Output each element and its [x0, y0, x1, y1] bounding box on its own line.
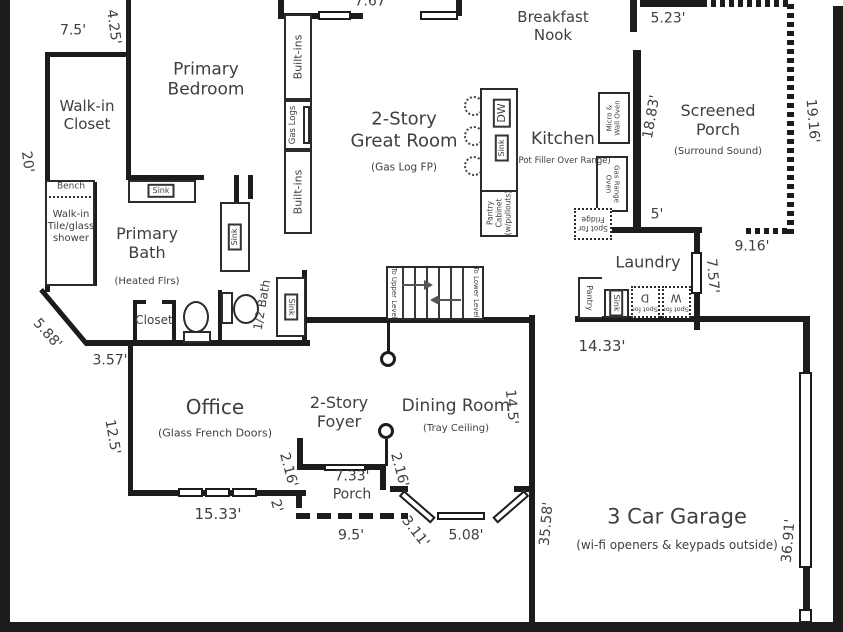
label-pantry-cabinet: PantryCabinet(w/pullouts) [486, 191, 513, 235]
label-spot-washer: Spot forW [663, 292, 689, 313]
wall-closet-top [45, 52, 130, 57]
stairs-down-arrow-shaft [439, 299, 461, 301]
label-walk-in-closet: Walk-inCloset [59, 97, 114, 133]
wall-stub-b [248, 175, 253, 199]
office-window-1 [178, 488, 203, 497]
dim-foyer-right: 2.16' [386, 451, 411, 489]
wall-bedroom-west [126, 0, 131, 180]
label-sink-laundry: Sink [609, 289, 623, 316]
wall-bathcloset-topleft [133, 300, 146, 304]
staircase [386, 266, 484, 320]
dim-garage-right: 36.91' [779, 518, 800, 563]
label-bench: Bench [57, 182, 85, 193]
label-screened-porch-sub: (Surround Sound) [674, 146, 762, 158]
wall-foyer-east [380, 464, 386, 490]
label-screened-porch: ScreenedPorch [680, 101, 755, 139]
dim-closet-top: 7.5' [60, 23, 86, 40]
dim-laundry-right: 7.57' [702, 258, 722, 294]
border-right [833, 6, 843, 632]
border-left [0, 0, 10, 632]
bay-window-center [437, 512, 485, 520]
dim-diag-wall: 5.88' [29, 315, 65, 352]
label-shower: Walk-inTile/glassshower [48, 209, 95, 245]
label-micro-wall-oven: Micro &Wall Oven [606, 100, 623, 135]
label-bath-closet: Closet [135, 313, 172, 327]
label-gas-range: Gas RangeOven [604, 165, 621, 203]
label-breakfast-nook: BreakfastNook [517, 8, 588, 44]
label-office-sub: (Glass French Doors) [158, 426, 272, 439]
label-spot-dryer: Spot forD [632, 292, 658, 313]
label-primary-bedroom: PrimaryBedroom [168, 60, 245, 101]
wall-kitchen-porch [633, 50, 641, 232]
border-bottom [0, 622, 843, 632]
label-foyer: 2-StoryFoyer [310, 393, 368, 431]
office-window-3 [232, 488, 257, 497]
dim-kitchen-wall: 18.83' [640, 94, 664, 140]
toilet-primary-tank [183, 331, 211, 343]
label-spot-fridge: Spot forFridge [578, 215, 608, 233]
dim-garage-top: 14.33' [578, 337, 625, 355]
label-primary-bath: PrimaryBath [116, 224, 178, 262]
dim-office-bottom: 15.33' [194, 505, 241, 523]
label-stairs-to-lower: To Lower Level [472, 266, 480, 317]
garage-door-2 [799, 609, 812, 623]
dim-office-left: 12.5' [101, 418, 124, 455]
label-garage-sub: (wi-fi openers & keypads outside) [576, 538, 778, 552]
dim-dining-right: 14.5' [501, 389, 521, 425]
label-great-room: 2-StoryGreat Room [350, 108, 457, 151]
label-laundry: Laundry [615, 252, 680, 271]
porch-bottom-screen [746, 228, 790, 234]
dim-porch-front: 9.5' [338, 528, 364, 545]
label-sink-island: Sink [495, 134, 509, 161]
dim-left-wall: 20' [17, 150, 37, 174]
wall-doorjamb-left [300, 464, 324, 470]
label-built-ins-lower: Built-ins [291, 170, 304, 215]
dim-porch-step2: 5' [651, 207, 664, 224]
wall-dining-east [529, 315, 535, 622]
porch-top-screen [702, 0, 792, 7]
dim-porch-step: 2' [266, 498, 286, 515]
label-gas-logs: Gas Logs [288, 106, 298, 145]
dim-porch-bottom: 9.16' [734, 239, 769, 256]
porch-right-screen [787, 4, 794, 234]
wall-office-west [128, 346, 133, 496]
porch-top-solid [640, 0, 702, 7]
label-kitchen-sub: (Pot Filler Over Range) [515, 156, 611, 166]
bay-window-right [492, 490, 529, 524]
label-front-porch: Porch [333, 487, 372, 504]
dim-garage-left: 35.58' [537, 501, 558, 546]
dim-bath-bottom: 3.57' [92, 353, 127, 370]
label-great-room-sub: (Gas Log FP) [371, 162, 437, 175]
label-sink-primary-1: Sink [147, 184, 174, 198]
wall-laundry-top [607, 227, 702, 233]
label-office: Office [186, 395, 244, 419]
newel-post [380, 351, 396, 367]
label-stairs-to-upper: To Upper Level [390, 267, 398, 319]
laundry-porch-door [691, 252, 702, 294]
label-primary-bath-sub: (Heated Flrs) [114, 276, 179, 288]
dim-nook-right: 5.23' [650, 11, 685, 28]
top-window-1 [318, 11, 351, 20]
dim-closet-step: 4.25' [102, 8, 124, 45]
porch-front-dashed-wall [296, 513, 408, 519]
fireplace-insert [303, 106, 310, 144]
garage-door-1 [799, 372, 812, 568]
bench-line [49, 196, 91, 198]
floor-plan: PrimaryBedroom Walk-inCloset PrimaryBath… [0, 0, 843, 632]
stairs-up-arrow-shaft [402, 284, 424, 286]
label-garage: 3 Car Garage [607, 504, 747, 529]
stairs-down-arrow-head [430, 295, 439, 305]
toilet-primary-bowl [183, 301, 209, 333]
label-kitchen: Kitchen [531, 129, 595, 149]
wall-porch-step [296, 490, 302, 508]
label-sink-primary-2: Sink [228, 223, 242, 250]
stairs-up-arrow-head [424, 280, 433, 290]
stair-treads [402, 268, 468, 318]
top-window-2 [420, 11, 458, 20]
dim-screened-right: 19.16' [802, 98, 823, 143]
wall-nook-right-stub [630, 0, 637, 32]
label-half-bath: 1/2 Bath [250, 279, 273, 332]
dim-bay-front: 5.08' [448, 528, 483, 545]
wall-top-seg2 [350, 13, 363, 19]
dim-top-opening: 7.67' [354, 0, 389, 10]
toilet-half-tank [221, 292, 233, 324]
label-sink-halfbath: Sink [284, 293, 298, 320]
label-built-ins-upper: Built-ins [291, 35, 304, 80]
label-laundry-pantry: Pantry [584, 285, 594, 311]
dim-porch-width: 7.33' [334, 469, 369, 486]
foyer-column [378, 423, 394, 439]
office-window-2 [205, 488, 230, 497]
label-dining-room-sub: (Tray Ceiling) [423, 423, 489, 435]
label-dining-room: Dining Room [402, 396, 511, 416]
label-dw-island: DW [493, 98, 511, 127]
newel-post-line [387, 321, 390, 352]
